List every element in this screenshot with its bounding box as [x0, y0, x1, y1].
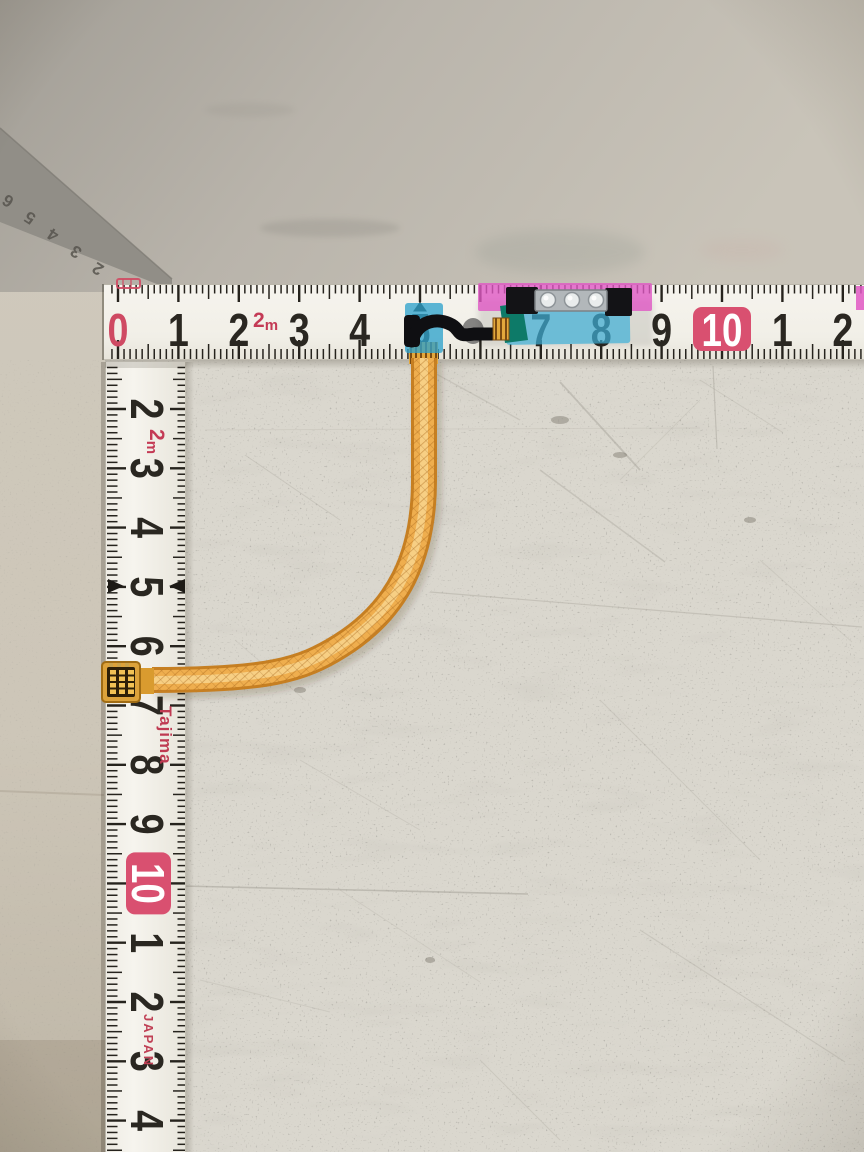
- vignette: [0, 0, 864, 1152]
- measurement-photo: 23456 0123457891012 2m 23456789101234 2m…: [0, 0, 864, 1152]
- photo-canvas: 23456 0123457891012 2m 23456789101234 2m…: [0, 0, 864, 1152]
